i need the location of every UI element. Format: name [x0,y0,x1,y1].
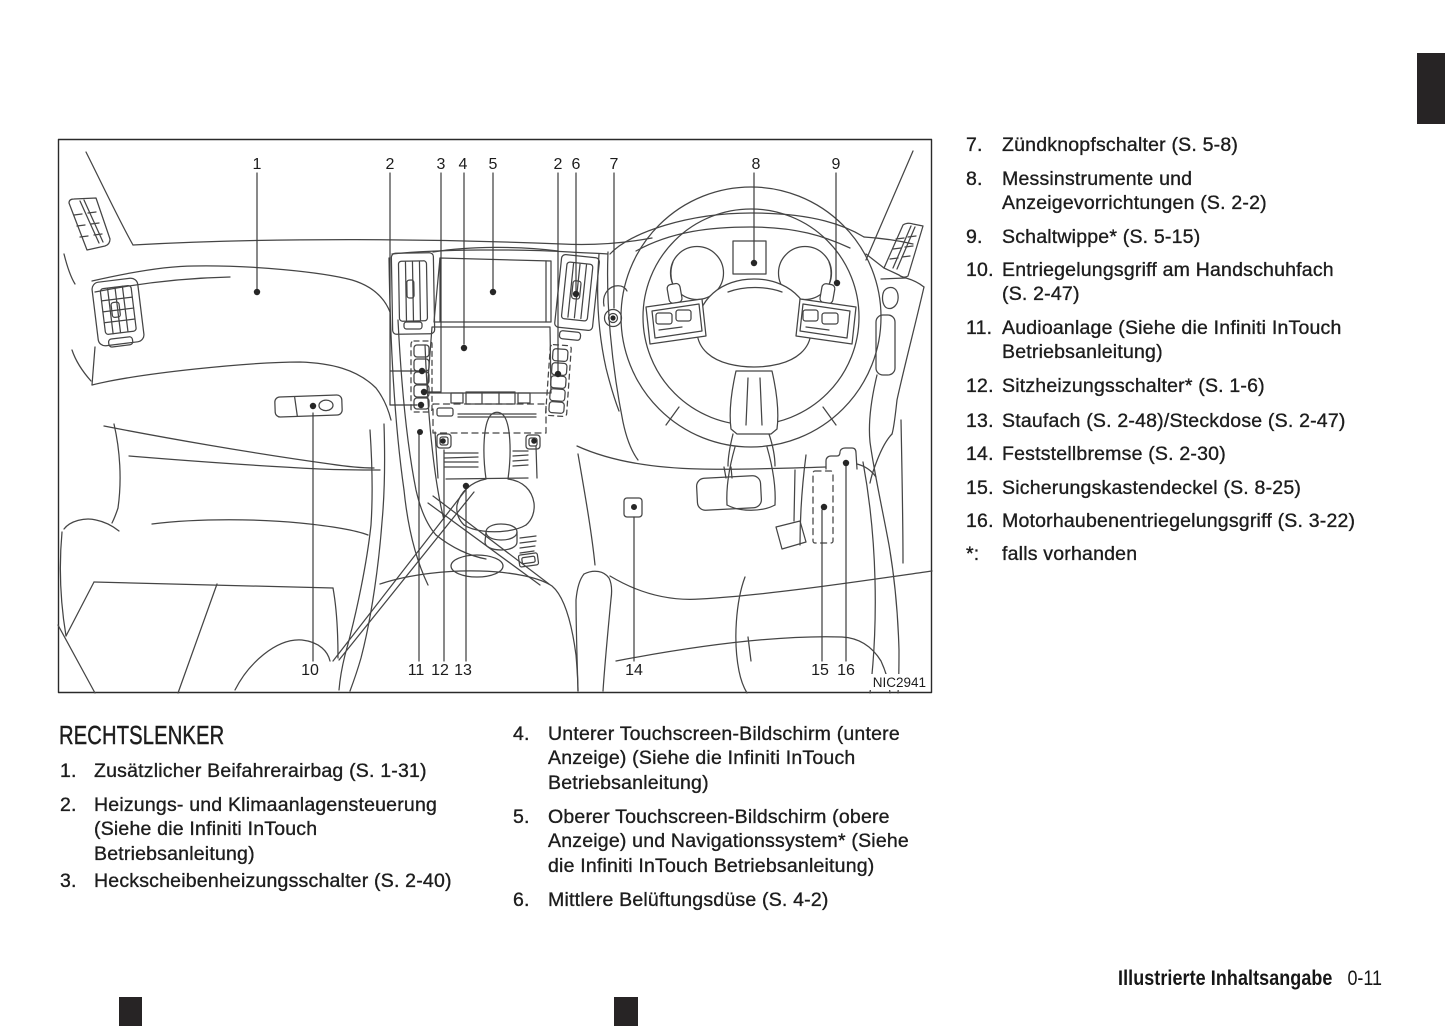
svg-text:7: 7 [610,156,619,173]
svg-text:8: 8 [752,156,761,173]
svg-text:11: 11 [408,662,425,679]
svg-text:NIC2941: NIC2941 [873,675,926,690]
svg-text:2: 2 [554,156,563,173]
svg-text:10: 10 [301,662,319,679]
svg-text:4: 4 [459,156,468,173]
svg-text:1: 1 [253,156,262,173]
svg-text:16: 16 [837,662,855,679]
svg-text:5: 5 [489,156,498,173]
svg-text:3: 3 [437,156,446,173]
svg-text:12: 12 [431,662,449,679]
svg-text:13: 13 [454,662,472,679]
svg-text:2: 2 [386,156,395,173]
svg-text:6: 6 [572,156,581,173]
svg-text:15: 15 [811,662,829,679]
svg-text:14: 14 [625,662,643,679]
svg-text:9: 9 [832,156,841,173]
